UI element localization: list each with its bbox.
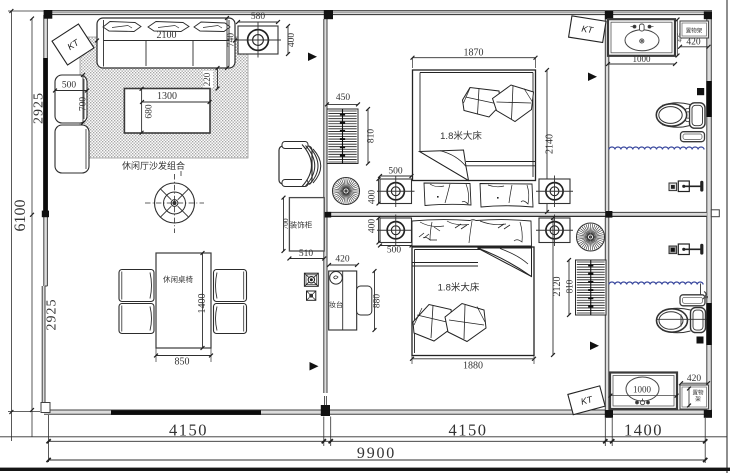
svg-text:400: 400 [287,33,297,48]
svg-text:2140: 2140 [545,134,556,154]
svg-text:810: 810 [565,279,575,293]
svg-text:妆台: 妆台 [329,300,343,309]
svg-text:置物架: 置物架 [686,27,703,35]
svg-text:400: 400 [368,190,378,205]
svg-text:510: 510 [299,249,314,259]
svg-text:置物: 置物 [692,389,704,397]
svg-text:9900: 9900 [357,445,396,462]
svg-text:420: 420 [686,38,701,48]
svg-text:1.8米大床: 1.8米大床 [440,130,482,142]
svg-text:220: 220 [202,72,212,86]
svg-text:500: 500 [388,167,403,177]
svg-text:2100: 2100 [157,30,177,41]
svg-text:580: 580 [251,12,266,22]
svg-text:810: 810 [367,129,377,144]
svg-text:1880: 1880 [463,361,483,372]
svg-text:装饰柜: 装饰柜 [290,220,313,230]
svg-text:2925: 2925 [32,92,47,124]
svg-text:休闲桌椅: 休闲桌椅 [163,274,193,284]
svg-text:400: 400 [368,219,378,234]
svg-text:500: 500 [62,81,77,91]
svg-text:850: 850 [175,357,190,368]
svg-text:420: 420 [335,255,350,265]
svg-text:700: 700 [281,218,290,230]
svg-text:1400: 1400 [197,294,208,314]
svg-text:4150: 4150 [449,421,488,440]
svg-text:6100: 6100 [12,200,29,232]
svg-text:2120: 2120 [552,277,563,297]
svg-text:700: 700 [79,97,89,112]
svg-text:1870: 1870 [464,48,484,59]
svg-text:架: 架 [695,396,701,403]
svg-text:1000: 1000 [633,54,652,64]
svg-text:880: 880 [373,294,383,309]
svg-text:1.8米大床: 1.8米大床 [438,282,480,294]
svg-text:休闲厅沙发组合: 休闲厅沙发组合 [122,160,185,171]
svg-text:420: 420 [687,374,702,384]
svg-text:4150: 4150 [169,421,208,440]
svg-text:1000: 1000 [633,385,652,395]
svg-text:2925: 2925 [45,299,60,331]
svg-text:680: 680 [145,104,155,119]
svg-text:1400: 1400 [624,421,663,440]
svg-text:500: 500 [387,246,402,256]
svg-text:450: 450 [336,93,351,103]
svg-text:1300: 1300 [157,91,177,102]
